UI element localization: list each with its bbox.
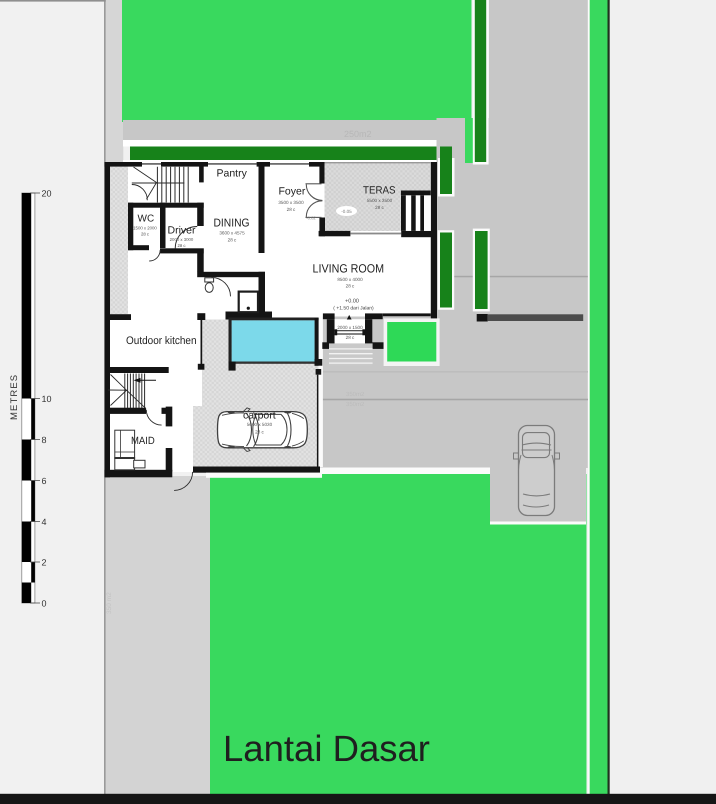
svg-text:-0.05: -0.05 [341, 209, 352, 214]
svg-text:DINING: DINING [214, 218, 250, 230]
svg-text:4: 4 [42, 517, 47, 527]
svg-text:350 m2: 350 m2 [106, 592, 113, 614]
svg-text:Driver: Driver [168, 225, 197, 237]
svg-text:8500 x 4000: 8500 x 4000 [337, 277, 363, 282]
svg-text:MAID: MAID [131, 435, 155, 447]
svg-text:Pantry: Pantry [217, 168, 248, 180]
svg-text:LIVING ROOM: LIVING ROOM [313, 262, 385, 276]
svg-text:+0.00: +0.00 [345, 299, 359, 305]
svg-text:carport: carport [243, 410, 276, 422]
svg-text:28 c: 28 c [287, 207, 296, 212]
svg-text:1500 x 2000: 1500 x 2000 [133, 226, 157, 231]
svg-text:2000 x 3000: 2000 x 3000 [170, 237, 194, 242]
svg-text:Lantai Dasar: Lantai Dasar [223, 728, 430, 769]
svg-text:5500 x 3500: 5500 x 3500 [367, 198, 393, 203]
svg-text:METRES: METRES [9, 374, 20, 420]
svg-text:350m2: 350m2 [346, 391, 365, 398]
svg-text:3500 x 3500: 3500 x 3500 [278, 200, 304, 205]
svg-text:Foyer: Foyer [279, 186, 306, 198]
svg-text:28 c: 28 c [228, 238, 237, 243]
svg-text:28 c: 28 c [346, 284, 355, 289]
svg-text:6: 6 [42, 476, 47, 486]
svg-text:250m2: 250m2 [344, 129, 372, 139]
svg-text:2000 x 1500: 2000 x 1500 [337, 325, 363, 330]
svg-text:3600 x 4575: 3600 x 4575 [219, 231, 245, 236]
svg-text:WC: WC [138, 214, 155, 225]
svg-text:10: 10 [42, 394, 52, 404]
svg-text:350m2: 350m2 [346, 401, 365, 408]
svg-text:28 c: 28 c [177, 243, 186, 248]
svg-text:0: 0 [42, 599, 47, 609]
svg-text:( +1.50 dari Jalan): ( +1.50 dari Jalan) [333, 305, 374, 311]
svg-text:TERAS: TERAS [363, 185, 396, 197]
svg-text:20: 20 [42, 189, 52, 199]
svg-text:28 c: 28 c [375, 205, 384, 210]
svg-text:-0.02: -0.02 [306, 216, 316, 221]
svg-text:5600 x 5030: 5600 x 5030 [247, 422, 273, 427]
svg-text:Outdoor kitchen: Outdoor kitchen [126, 335, 197, 347]
svg-text:2: 2 [42, 558, 47, 568]
svg-text:28 c: 28 c [255, 430, 264, 435]
svg-text:28 c: 28 c [346, 335, 355, 340]
svg-text:8: 8 [42, 435, 47, 445]
svg-text:28 c: 28 c [141, 232, 150, 237]
